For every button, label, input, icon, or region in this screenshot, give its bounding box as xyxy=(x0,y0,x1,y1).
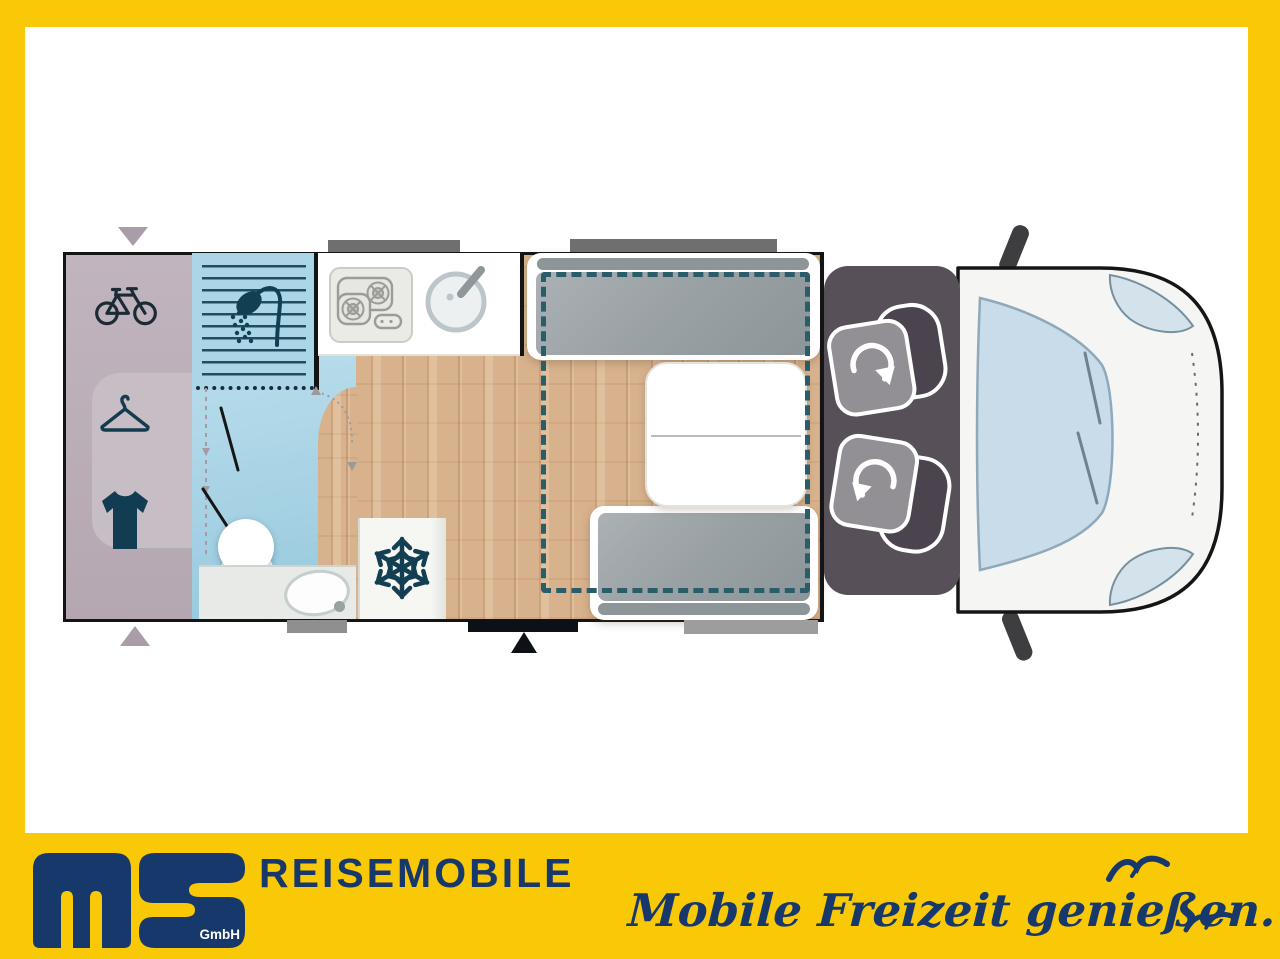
window-marker xyxy=(684,620,818,634)
company-type-label: REISEMOBILE xyxy=(259,853,574,894)
seagull-icon xyxy=(1106,853,1170,887)
logo-letter-m xyxy=(33,853,131,948)
advertisement-canvas: GmbH REISEMOBILE Mobile Freizeit genieße… xyxy=(0,0,1280,959)
shower-icon xyxy=(227,283,297,361)
garage-access-arrow-top xyxy=(118,227,148,246)
window-marker xyxy=(328,240,460,252)
swivel-seat-driver xyxy=(824,301,950,417)
window-marker xyxy=(287,620,347,633)
snowflake-icon xyxy=(369,535,435,601)
window-marker xyxy=(570,239,777,252)
cab-bulkhead-wall xyxy=(820,252,824,622)
swivel-seat-passenger xyxy=(826,433,955,556)
bench-backrest xyxy=(537,258,809,270)
hanger-icon xyxy=(99,394,151,434)
drop-down-bed-outline xyxy=(541,272,810,593)
entry-arrow xyxy=(511,632,537,653)
cab-swivel-seats xyxy=(822,262,970,606)
shirt-icon xyxy=(100,489,150,551)
entry-door-marker xyxy=(468,620,578,632)
bathroom-door-swing-arc xyxy=(306,384,366,480)
brand-bar: GmbH REISEMOBILE Mobile Freizeit genieße… xyxy=(0,833,1280,959)
garage-access-arrow-bottom xyxy=(120,626,150,646)
seagull-icon xyxy=(1183,908,1239,936)
ms-logo: GmbH xyxy=(33,853,245,948)
bicycle-icon xyxy=(95,280,157,326)
side-mirror-icon xyxy=(1000,608,1035,663)
bench-backrest xyxy=(598,603,810,615)
kitchen-sink-icon xyxy=(414,257,502,343)
slogan-text: Mobile Freizeit genießen. xyxy=(627,888,1277,933)
logo-gmbh-label: GmbH xyxy=(200,927,241,942)
washbasin-faucet xyxy=(334,601,345,612)
vehicle-front xyxy=(950,218,1242,668)
hob-icon xyxy=(329,267,413,343)
kitchen-end-wall xyxy=(520,253,524,356)
